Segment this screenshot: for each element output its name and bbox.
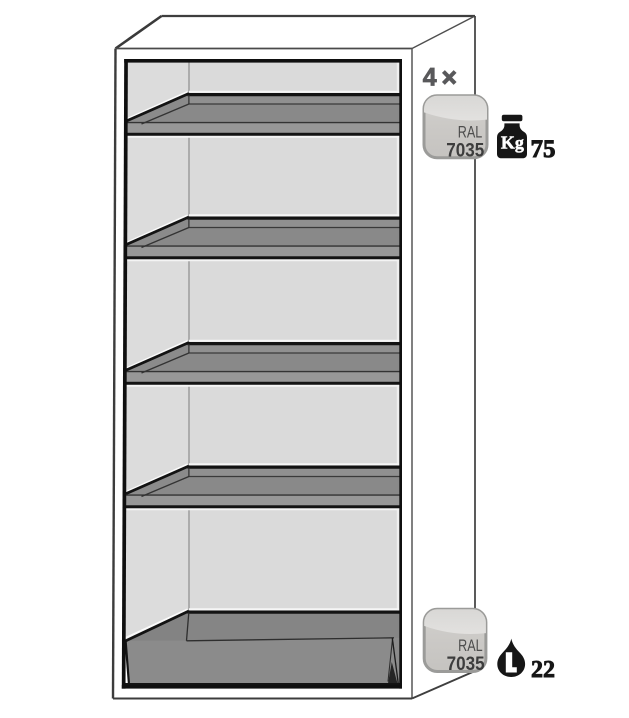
svg-text:Kg: Kg <box>501 133 524 153</box>
svg-text:RAL: RAL <box>458 636 483 655</box>
svg-text:RAL: RAL <box>458 122 483 141</box>
svg-text:75: 75 <box>531 136 556 163</box>
svg-text:22: 22 <box>531 657 555 683</box>
svg-text:7035: 7035 <box>447 654 485 675</box>
svg-text:4: 4 <box>423 63 437 91</box>
svg-text:7035: 7035 <box>446 140 484 161</box>
